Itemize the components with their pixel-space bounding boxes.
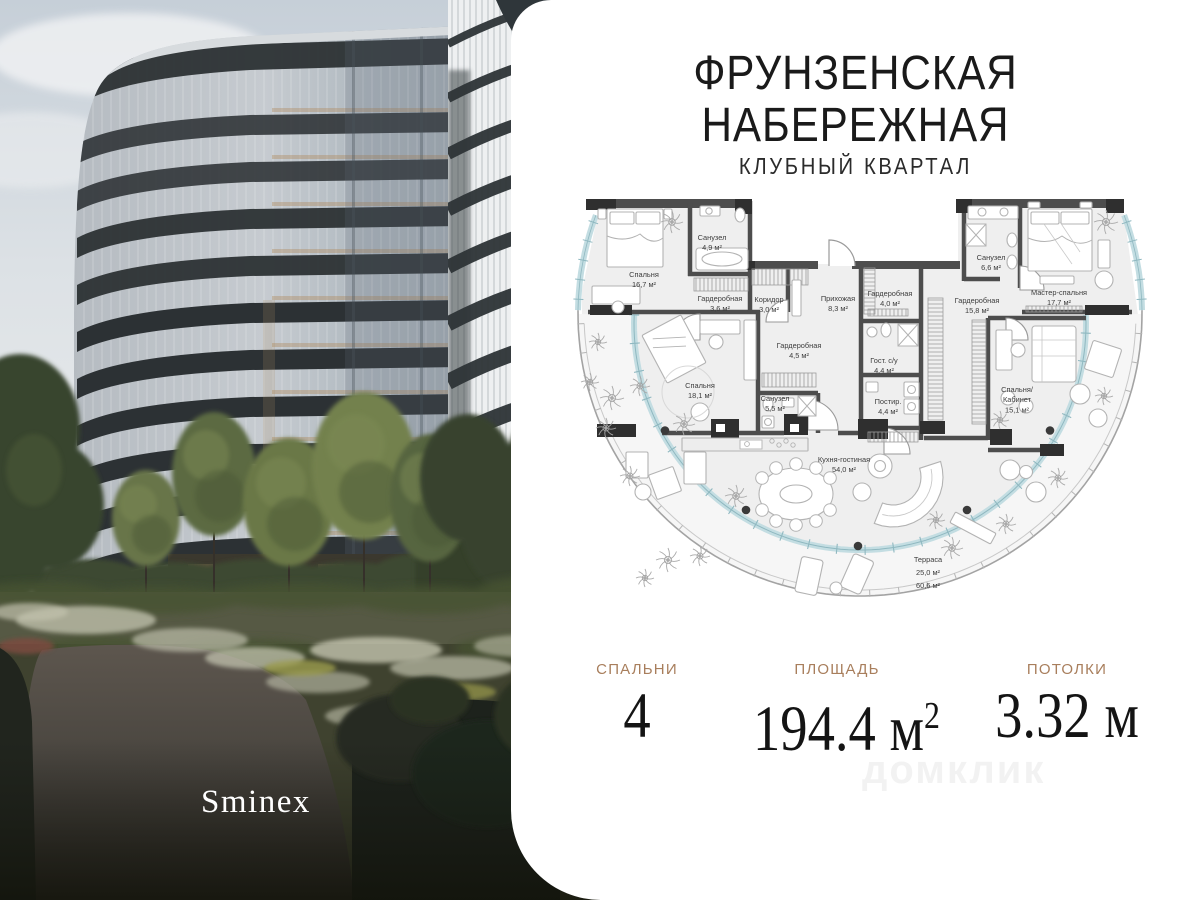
- svg-text:Спальня: Спальня: [685, 381, 715, 390]
- svg-text:Терраса: Терраса: [914, 555, 943, 564]
- svg-text:3,0 м²: 3,0 м²: [759, 305, 779, 314]
- svg-text:17,7 м²: 17,7 м²: [1047, 298, 1072, 307]
- svg-text:4,9 м²: 4,9 м²: [702, 243, 722, 252]
- svg-text:Спальня: Спальня: [629, 270, 659, 279]
- svg-text:8,3 м²: 8,3 м²: [828, 304, 848, 313]
- svg-text:Санузел: Санузел: [761, 394, 790, 403]
- svg-text:Кабинет: Кабинет: [1003, 395, 1032, 404]
- svg-text:15,8 м²: 15,8 м²: [965, 306, 990, 315]
- svg-text:54,0 м²: 54,0 м²: [832, 465, 857, 474]
- svg-text:Гост. с/у: Гост. с/у: [870, 356, 898, 365]
- svg-text:4,5 м²: 4,5 м²: [789, 351, 809, 360]
- svg-text:5,5 м²: 5,5 м²: [765, 404, 785, 413]
- svg-text:Спальня/: Спальня/: [1001, 385, 1034, 394]
- svg-text:4,0 м²: 4,0 м²: [880, 299, 900, 308]
- svg-text:Гардеробная: Гардеробная: [955, 296, 1000, 305]
- svg-text:4,4 м²: 4,4 м²: [874, 366, 894, 375]
- svg-text:4,4 м²: 4,4 м²: [878, 407, 898, 416]
- svg-text:Мастер-спальня: Мастер-спальня: [1031, 288, 1087, 297]
- svg-text:15,1 м²: 15,1 м²: [1005, 405, 1030, 414]
- svg-text:Санузел: Санузел: [977, 253, 1006, 262]
- svg-text:16,7 м²: 16,7 м²: [632, 280, 657, 289]
- svg-text:Постир.: Постир.: [875, 397, 902, 406]
- svg-text:18,1 м²: 18,1 м²: [688, 391, 713, 400]
- svg-text:Кухня-гостиная: Кухня-гостиная: [818, 455, 870, 464]
- svg-text:6,6 м²: 6,6 м²: [981, 263, 1001, 272]
- svg-text:Коридор: Коридор: [754, 295, 783, 304]
- svg-text:3,6 м²: 3,6 м²: [710, 304, 730, 313]
- svg-text:60,6 м²: 60,6 м²: [916, 581, 941, 590]
- svg-text:25,0 м²: 25,0 м²: [916, 568, 941, 577]
- svg-text:Санузел: Санузел: [698, 233, 727, 242]
- svg-text:Прихожая: Прихожая: [821, 294, 855, 303]
- svg-text:Гардеробная: Гардеробная: [868, 289, 913, 298]
- svg-text:Гардеробная: Гардеробная: [777, 341, 822, 350]
- svg-text:Гардеробная: Гардеробная: [698, 294, 743, 303]
